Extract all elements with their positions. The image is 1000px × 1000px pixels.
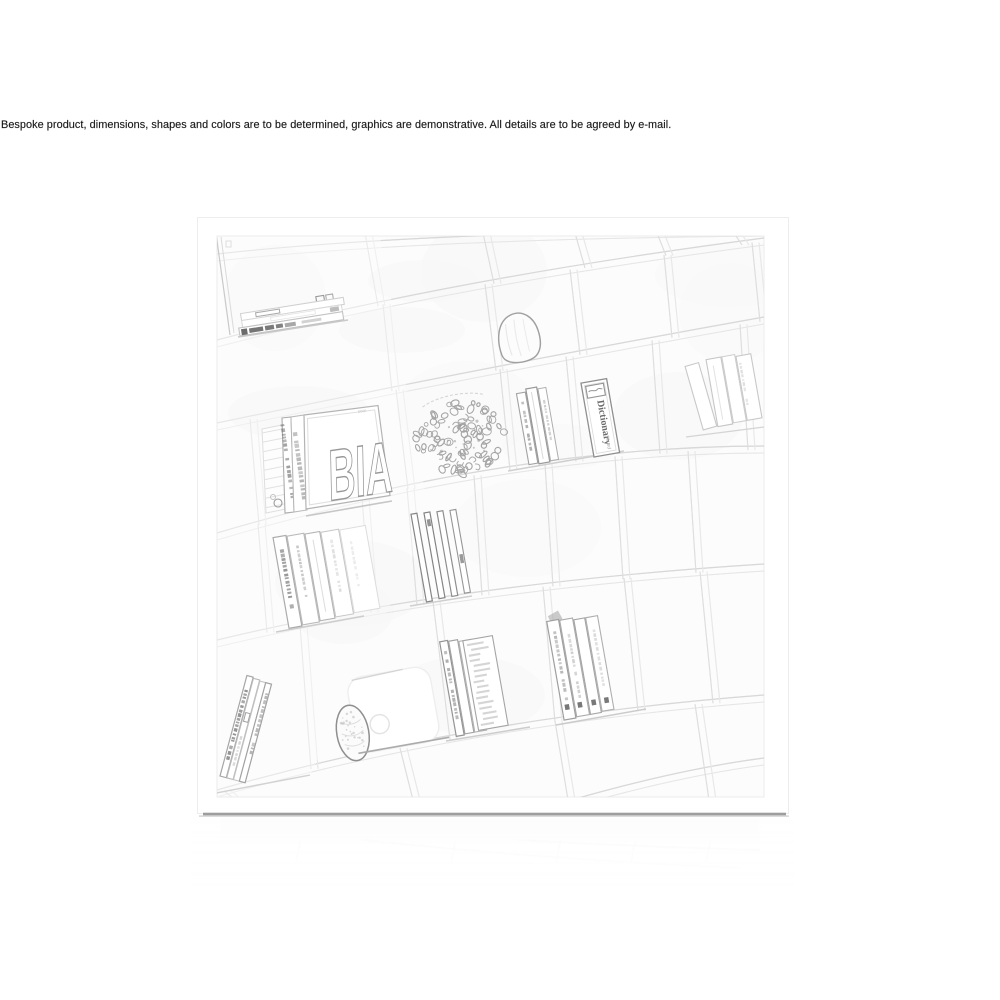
svg-text:Bespoke product, dimensions, s: Bespoke product, dimensions, shapes and … (1, 119, 671, 131)
svg-text:BIA: BIA (328, 427, 394, 517)
